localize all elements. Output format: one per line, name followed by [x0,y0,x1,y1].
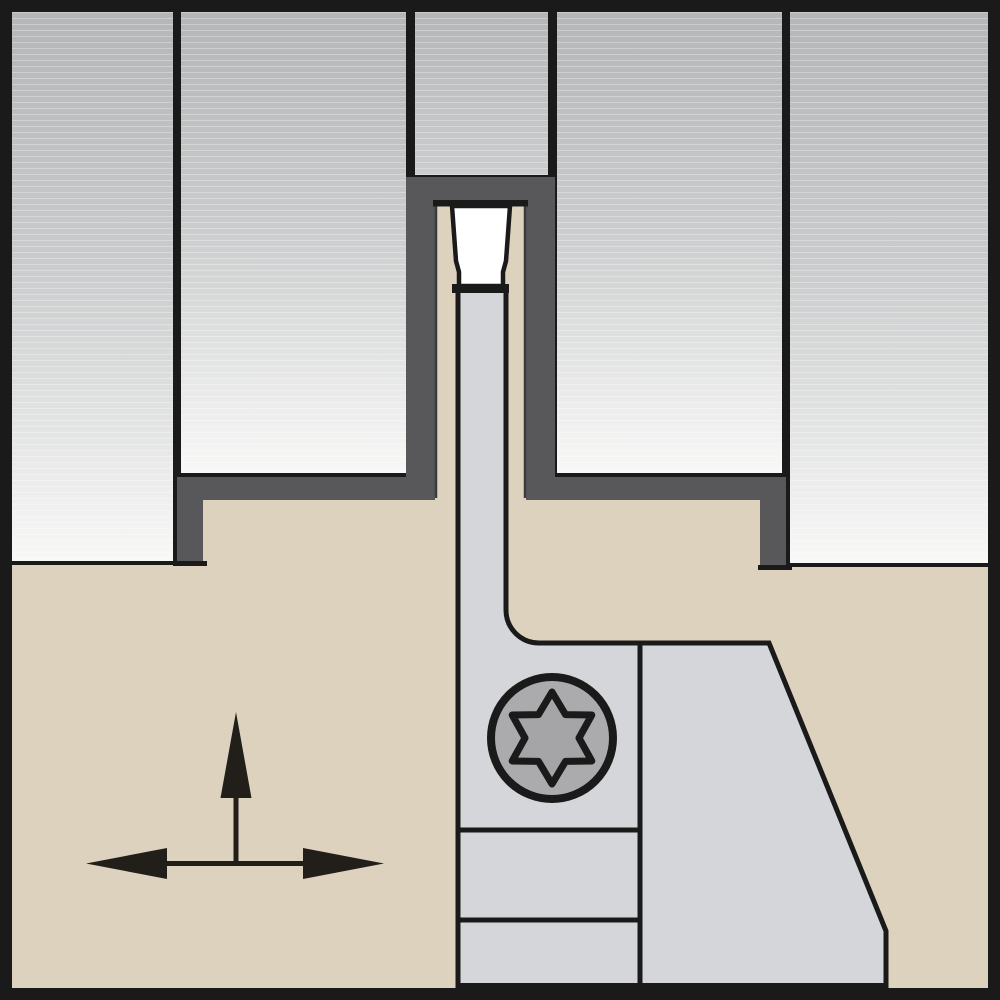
image-frame [0,0,1000,1000]
diagram-canvas [0,0,1000,1000]
